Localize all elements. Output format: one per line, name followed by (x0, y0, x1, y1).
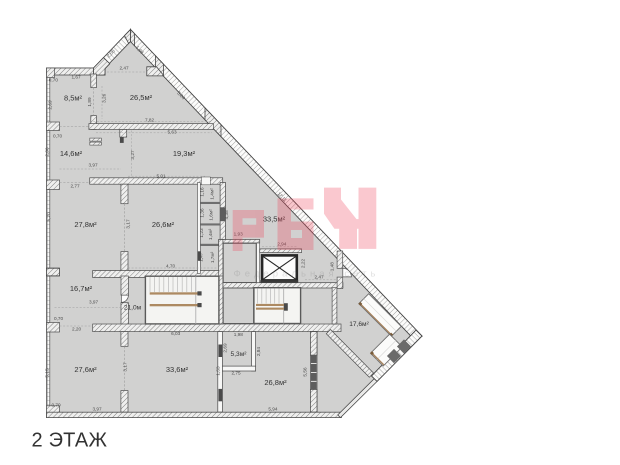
svg-text:2,69: 2,69 (48, 100, 53, 110)
svg-text:19,3м²: 19,3м² (173, 149, 196, 158)
svg-text:1,4м²: 1,4м² (210, 188, 215, 200)
svg-text:33,6м²: 33,6м² (166, 365, 189, 374)
svg-text:3,27: 3,27 (130, 150, 135, 160)
svg-text:14,6м²: 14,6м² (60, 149, 83, 158)
svg-text:17,6м²: 17,6м² (349, 321, 369, 328)
svg-text:3,97: 3,97 (92, 407, 102, 412)
svg-text:2,69: 2,69 (222, 343, 227, 353)
svg-text:0,70: 0,70 (52, 403, 62, 408)
svg-text:Федеральная сеть: Федеральная сеть (234, 269, 377, 280)
svg-text:2 ЭТАЖ: 2 ЭТАЖ (32, 429, 108, 451)
svg-text:1,23: 1,23 (199, 228, 204, 238)
svg-text:2,20: 2,20 (72, 326, 82, 331)
svg-text:2,77: 2,77 (70, 184, 80, 189)
svg-text:4,70: 4,70 (166, 263, 176, 268)
svg-text:1,67: 1,67 (72, 75, 82, 80)
svg-text:7,82: 7,82 (145, 118, 155, 123)
svg-text:1,53: 1,53 (216, 366, 221, 376)
svg-text:5,20: 5,20 (46, 212, 51, 222)
svg-text:27,6м²: 27,6м² (74, 365, 97, 374)
svg-text:3,26: 3,26 (102, 93, 107, 103)
svg-text:1,36: 1,36 (199, 208, 204, 218)
svg-text:3,17: 3,17 (123, 362, 128, 372)
svg-text:3,97: 3,97 (88, 163, 98, 168)
svg-text:5,94: 5,94 (268, 407, 278, 412)
svg-text:1,6м²: 1,6м² (209, 209, 214, 221)
svg-text:5,15: 5,15 (45, 368, 50, 378)
svg-text:5,56: 5,56 (303, 367, 308, 377)
svg-text:3,97: 3,97 (89, 300, 99, 305)
svg-text:5,01: 5,01 (157, 173, 167, 178)
svg-text:16,7м²: 16,7м² (70, 284, 93, 293)
svg-text:0,70: 0,70 (49, 78, 59, 83)
svg-text:4,38: 4,38 (224, 210, 229, 220)
svg-text:0,70: 0,70 (54, 316, 64, 321)
svg-text:1,98: 1,98 (234, 332, 244, 337)
svg-text:0,70: 0,70 (53, 133, 63, 138)
svg-text:2,84: 2,84 (256, 347, 261, 357)
svg-text:2,22: 2,22 (301, 259, 306, 269)
svg-text:26,6м²: 26,6м² (152, 220, 175, 229)
svg-text:6,03: 6,03 (171, 331, 181, 336)
svg-text:1,7м²: 1,7м² (210, 251, 215, 263)
svg-text:1,47: 1,47 (199, 252, 204, 262)
svg-text:2,47: 2,47 (119, 65, 129, 70)
svg-text:1,4м²: 1,4м² (208, 228, 213, 240)
svg-text:27,8м²: 27,8м² (74, 220, 97, 229)
svg-text:1,16: 1,16 (199, 187, 204, 197)
svg-text:3,17: 3,17 (125, 219, 130, 229)
svg-text:1,89: 1,89 (87, 97, 92, 107)
svg-text:2,75: 2,75 (231, 371, 241, 376)
svg-text:8,5м²: 8,5м² (64, 94, 83, 103)
svg-text:5,3м²: 5,3м² (231, 351, 248, 358)
svg-text:21,0м: 21,0м (124, 305, 142, 312)
svg-text:26,5м²: 26,5м² (130, 93, 153, 102)
svg-text:5,63: 5,63 (168, 129, 178, 134)
svg-text:2,96: 2,96 (45, 147, 50, 157)
svg-text:26,8м²: 26,8м² (264, 378, 287, 387)
